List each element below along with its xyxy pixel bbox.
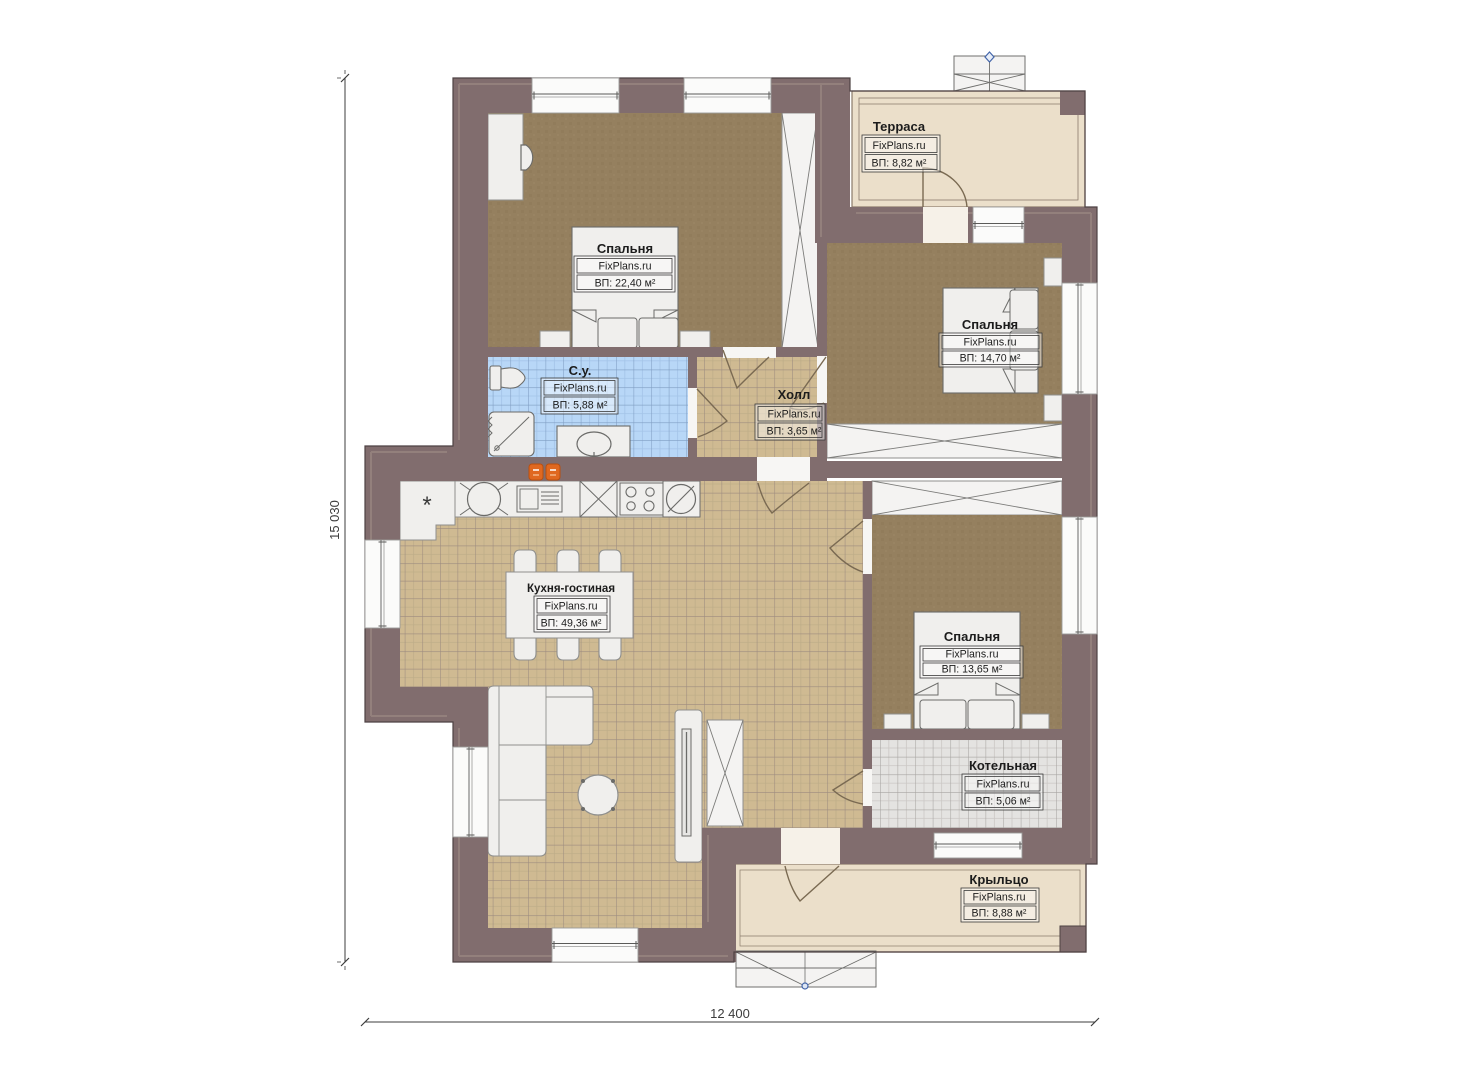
svg-text:ВП: 5,06 м²: ВП: 5,06 м² bbox=[976, 796, 1031, 808]
svg-text:ВП: 8,82 м²: ВП: 8,82 м² bbox=[872, 158, 927, 170]
svg-text:FixPlans.ru: FixPlans.ru bbox=[554, 383, 607, 395]
svg-text:FixPlans.ru: FixPlans.ru bbox=[768, 409, 821, 421]
svg-text:FixPlans.ru: FixPlans.ru bbox=[964, 337, 1017, 349]
svg-text:ВП: 49,36 м²: ВП: 49,36 м² bbox=[541, 618, 602, 630]
svg-text:ВП: 3,65 м²: ВП: 3,65 м² bbox=[767, 426, 822, 438]
svg-text:ВП: 5,88 м²: ВП: 5,88 м² bbox=[553, 400, 608, 412]
svg-text:ВП: 22,40 м²: ВП: 22,40 м² bbox=[595, 278, 656, 290]
svg-text:FixPlans.ru: FixPlans.ru bbox=[946, 649, 999, 661]
svg-text:Крыльцо: Крыльцо bbox=[969, 872, 1028, 887]
svg-text:FixPlans.ru: FixPlans.ru bbox=[873, 140, 926, 152]
svg-text:*: * bbox=[422, 492, 431, 519]
svg-text:FixPlans.ru: FixPlans.ru bbox=[977, 779, 1030, 791]
svg-text:ВП: 13,65 м²: ВП: 13,65 м² bbox=[942, 664, 1003, 676]
svg-text:Терраса: Терраса bbox=[873, 119, 926, 134]
svg-text:FixPlans.ru: FixPlans.ru bbox=[973, 892, 1026, 904]
svg-text:15 030: 15 030 bbox=[327, 500, 342, 540]
svg-text:Спальня: Спальня bbox=[597, 241, 653, 256]
svg-text:12 400: 12 400 bbox=[710, 1006, 750, 1021]
svg-text:ВП: 8,88 м²: ВП: 8,88 м² bbox=[972, 908, 1027, 920]
svg-text:FixPlans.ru: FixPlans.ru bbox=[545, 601, 598, 613]
svg-text:ВП: 14,70 м²: ВП: 14,70 м² bbox=[960, 353, 1021, 365]
svg-text:Холл: Холл bbox=[778, 387, 811, 402]
svg-text:Кухня-гостиная: Кухня-гостиная bbox=[527, 583, 615, 595]
svg-text:Спальня: Спальня bbox=[962, 317, 1018, 332]
svg-text:С.у.: С.у. bbox=[569, 363, 592, 378]
svg-text:Спальня: Спальня bbox=[944, 629, 1000, 644]
svg-text:FixPlans.ru: FixPlans.ru bbox=[599, 261, 652, 273]
svg-text:Котельная: Котельная bbox=[969, 758, 1037, 773]
